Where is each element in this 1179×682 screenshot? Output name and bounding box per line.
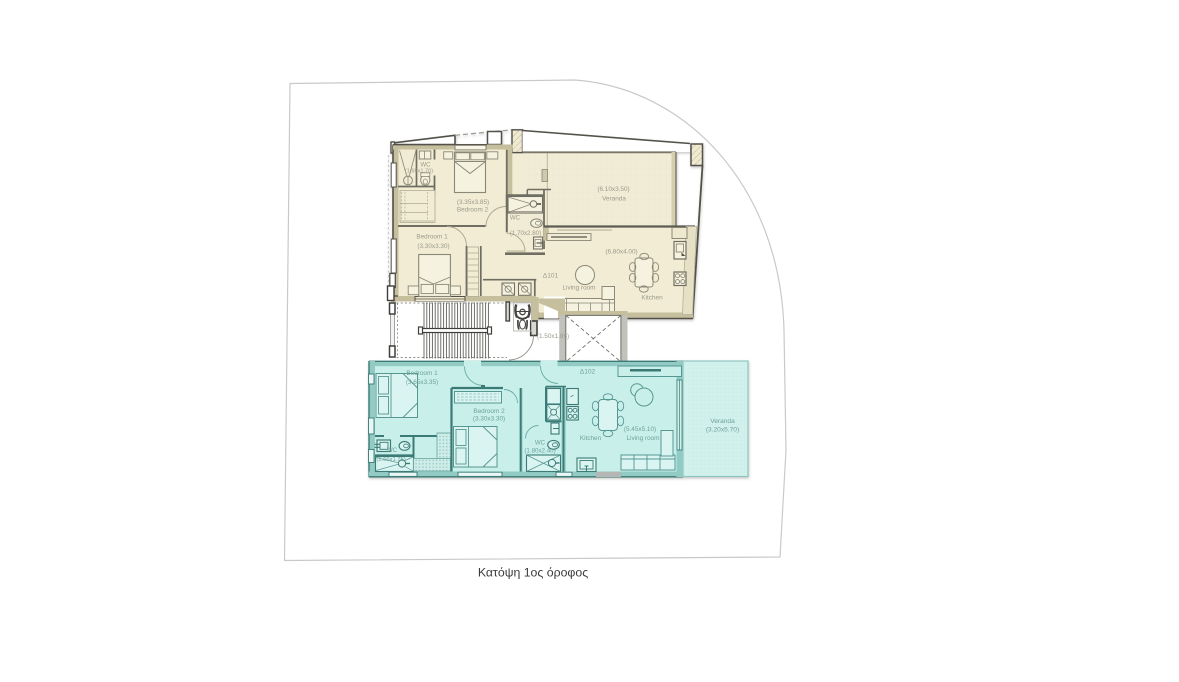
svg-text:Bedroom 1: Bedroom 1 [416,234,448,241]
svg-text:(1.50x1.85): (1.50x1.85) [537,333,569,340]
svg-text:(3.30x3.30): (3.30x3.30) [417,243,449,250]
svg-text:(1.70x2.80): (1.70x2.80) [510,230,541,237]
svg-text:Bedroom 1: Bedroom 1 [406,370,438,377]
svg-text:Living room: Living room [562,285,595,292]
svg-text:Kitchen: Kitchen [641,295,663,302]
svg-text:(3.65x3.35): (3.65x3.35) [406,379,438,386]
svg-text:WC: WC [535,440,546,447]
svg-text:Kitchen: Kitchen [580,435,602,442]
svg-text:(6.80x4.00): (6.80x4.00) [605,249,637,256]
svg-text:Bedroom 2: Bedroom 2 [473,408,505,415]
svg-text:(6.10x3.50): (6.10x3.50) [597,186,629,193]
svg-text:Bedroom 2: Bedroom 2 [457,207,489,214]
svg-text:(5.45x5.10): (5.45x5.10) [624,426,656,433]
svg-text:Living room: Living room [626,435,659,442]
svg-text:Veranda: Veranda [602,196,626,203]
svg-text:(3.30x3.30): (3.30x3.30) [473,416,505,423]
svg-text:Δ102: Δ102 [580,369,596,376]
svg-text:Δ101: Δ101 [543,273,559,280]
svg-text:WC: WC [510,215,521,222]
svg-text:(1.66x1.75): (1.66x1.75) [376,457,405,463]
svg-text:WC: WC [387,447,398,454]
svg-text:(3.35x3.85): (3.35x3.85) [457,199,489,206]
svg-text:(1.65x1.70): (1.65x1.70) [405,169,433,175]
svg-text:Veranda: Veranda [710,418,735,425]
svg-text:Κατόψη 1ος όροφος: Κατόψη 1ος όροφος [478,566,588,580]
svg-text:(3.20x5.70): (3.20x5.70) [706,427,739,434]
